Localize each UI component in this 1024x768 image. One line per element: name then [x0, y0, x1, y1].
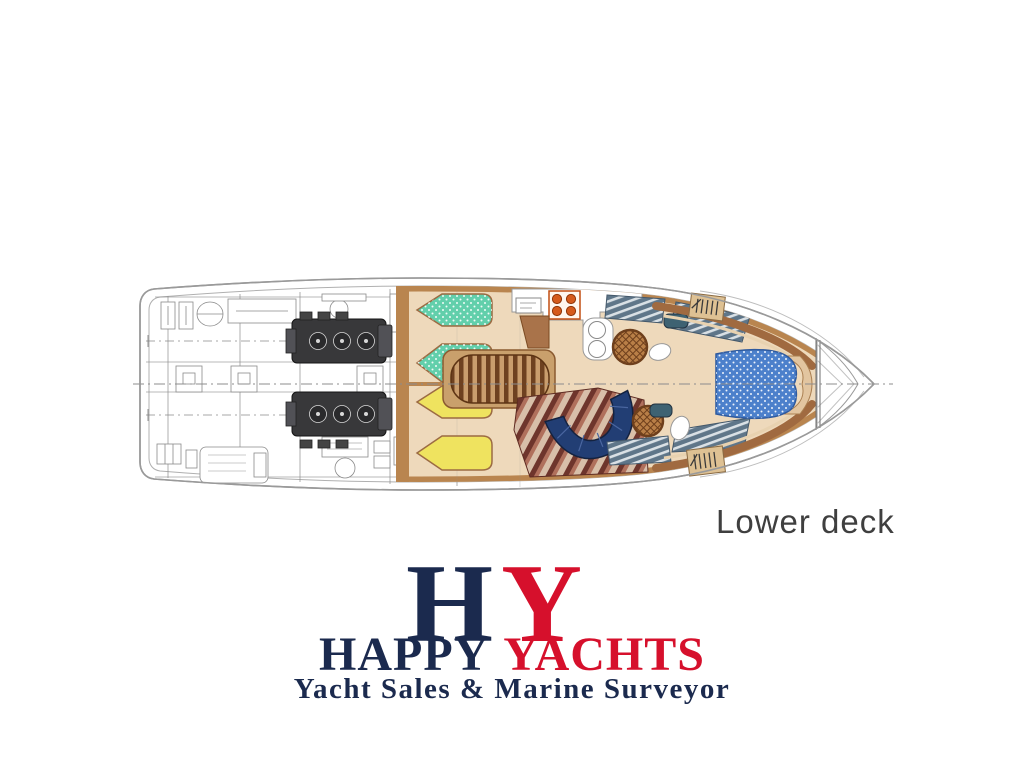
galley-sink	[589, 322, 606, 339]
engine-port	[286, 312, 392, 363]
page: Lower deck HY HAPPYYACHTS Yacht Sales & …	[0, 0, 1024, 768]
galley-label-box	[516, 298, 541, 313]
logo-tagline: Yacht Sales & Marine Surveyor	[0, 675, 1024, 704]
deck-caption: Lower deck	[716, 503, 916, 541]
table-round-forward	[613, 330, 647, 364]
logo-name: HAPPYYACHTS	[0, 631, 1024, 679]
galley-sink	[589, 341, 606, 358]
